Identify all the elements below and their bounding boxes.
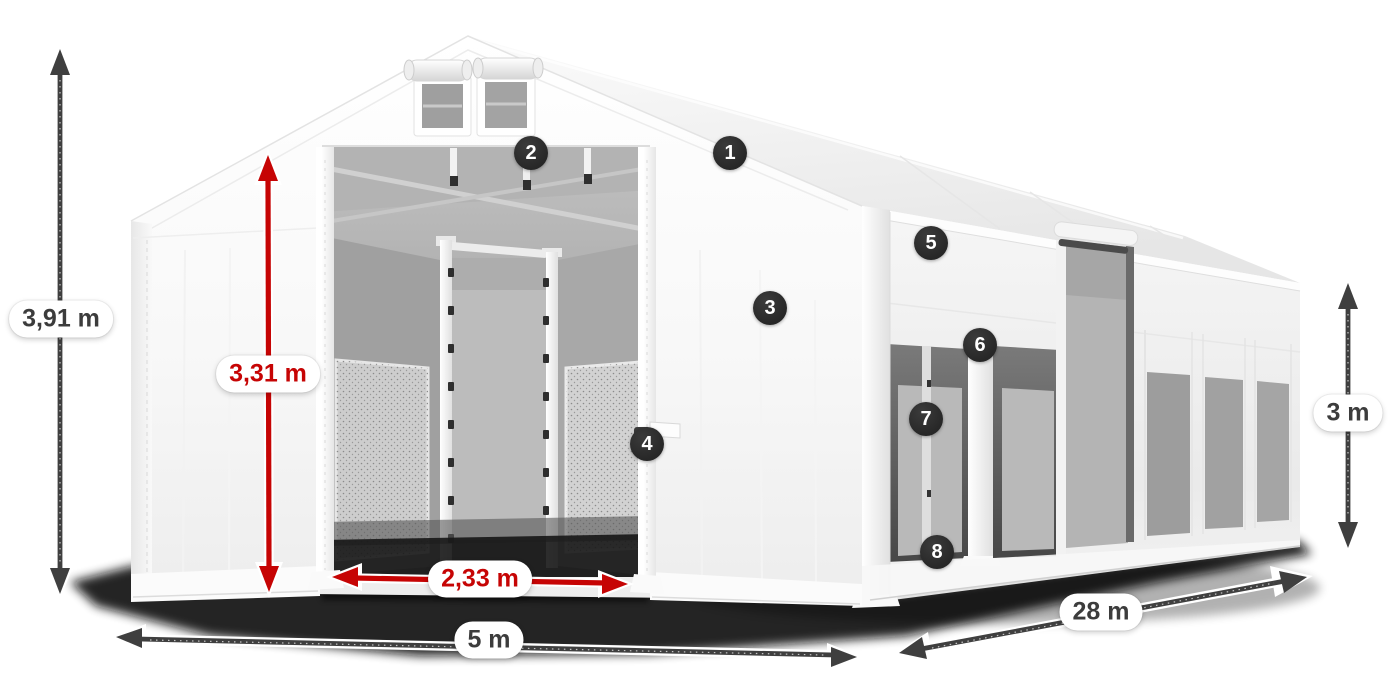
badge-5: 5 [914,226,948,260]
tent-dimension-diagram: 3,91 m 3,31 m 2,33 m 5 m 28 m 3 m 1 2 3 … [0,0,1400,700]
rolled-vent-flap [404,60,472,81]
interior-pole [922,346,931,557]
badge-8: 8 [920,535,954,569]
corner-post [862,206,890,602]
side-height-label: 3 m [1313,395,1382,432]
total-height-label: 3,91 m [9,301,113,338]
entrance-width-label: 2,33 m [428,561,532,598]
badge-6: 6 [963,328,997,362]
entrance-height-label: 3,31 m [216,356,320,393]
side-window [1147,372,1190,536]
badge-4: 4 [630,427,664,461]
side-window [1205,377,1243,529]
rolled-vent-flap [473,58,543,79]
front-entrance-interior [322,147,650,577]
badge-7: 7 [909,402,943,436]
width-label: 5 m [454,622,523,659]
side-post [968,342,993,560]
badge-2: 2 [514,136,548,170]
tent-illustration [0,0,1400,700]
badge-1: 1 [713,136,747,170]
length-label: 28 m [1060,594,1143,631]
badge-3: 3 [753,291,787,325]
side-window [1257,381,1289,522]
